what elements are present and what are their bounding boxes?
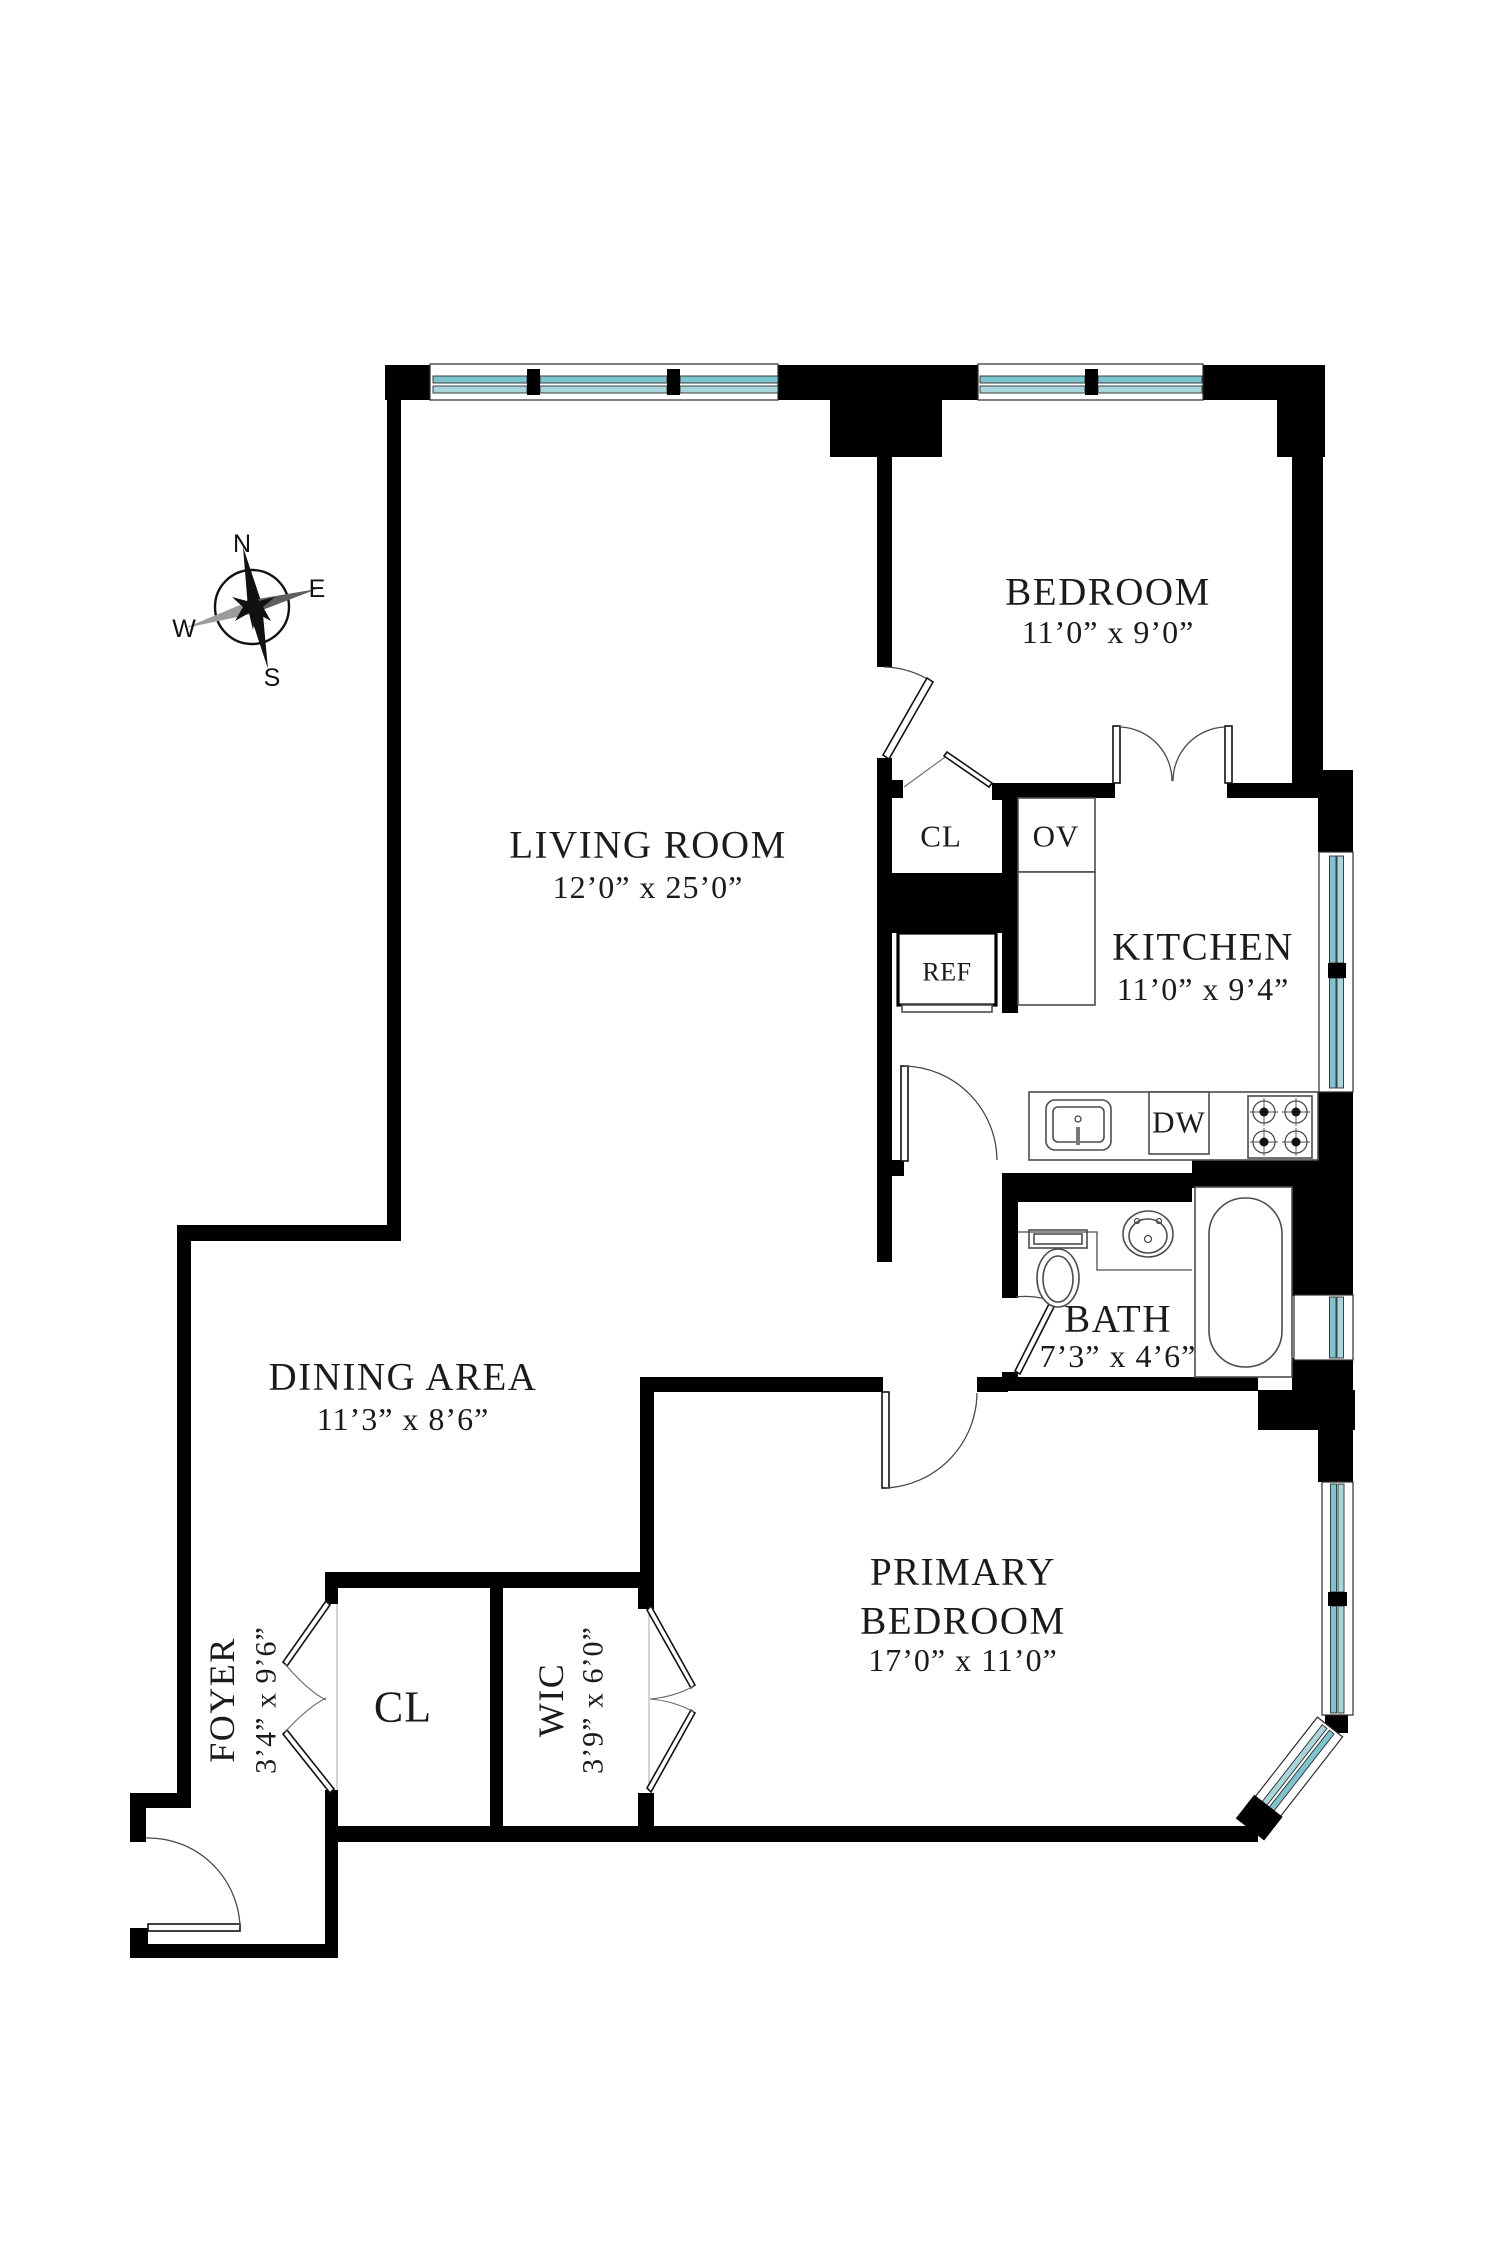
wall-segment (993, 783, 1115, 798)
wall-segment (1277, 400, 1325, 457)
kitchen-sink (1046, 1100, 1111, 1150)
wall-segment (640, 1377, 883, 1392)
wall-segment (1203, 365, 1325, 400)
door-primary-bedroom (882, 1392, 977, 1488)
label-dining-area-dims: 11’3” x 8’6” (317, 1401, 490, 1437)
door-wic (647, 1606, 695, 1792)
compass-letter-n: N (233, 530, 251, 558)
label-primary-line2: BEDROOM (860, 1600, 1066, 1643)
label-dishwasher: DW (1152, 1105, 1206, 1140)
wall-segment (877, 873, 1018, 933)
door-entry (146, 1838, 240, 1931)
label-bedroom-dims: 11’0” x 9’0” (1022, 614, 1195, 650)
label-refrigerator: REF (922, 958, 971, 987)
wall-segment (1292, 457, 1323, 797)
wall-segment (877, 758, 892, 1160)
window-bedroom-north (978, 364, 1203, 400)
wall-segment (890, 780, 903, 798)
label-bath: BATH (1064, 1298, 1172, 1341)
wall-segment (1318, 770, 1353, 852)
label-foyer: FOYER (202, 1637, 242, 1763)
label-dining-area: DINING AREA (269, 1356, 538, 1399)
wall-segment (325, 1808, 338, 1958)
wall-segment (892, 1160, 904, 1176)
bath-sink (1123, 1211, 1173, 1257)
label-wic-dims: 3’9” x 6’0” (577, 1626, 610, 1774)
wall-segment (877, 1160, 892, 1262)
window-bath-east (1294, 1295, 1353, 1360)
label-wic: WIC (531, 1663, 571, 1737)
wall-segment (387, 365, 401, 1225)
label-primary-dims: 17’0” x 11’0” (868, 1642, 1058, 1678)
label-foyer-closet: CL (374, 1683, 432, 1732)
window-living-north (430, 364, 778, 400)
wall-segment (177, 1241, 191, 1793)
label-oven: OV (1033, 819, 1080, 854)
wall-segment (130, 1808, 146, 1842)
label-hall-closet: CL (920, 819, 962, 854)
wall-segment (490, 1572, 503, 1832)
door-french-bedroom (1113, 726, 1232, 783)
room-labels: LIVING ROOM 12’0” x 25’0” BEDROOM 11’0” … (202, 571, 1294, 1774)
wall-segment (325, 1790, 338, 1808)
wall-segment (1292, 1160, 1353, 1296)
wall-segment (130, 1944, 338, 1958)
wall-segment (1318, 1092, 1353, 1160)
door-living-to-hall (883, 667, 933, 759)
label-living-room-dims: 12’0” x 25’0” (553, 869, 744, 905)
wall-segment (1292, 1358, 1353, 1428)
wall-segment (877, 457, 892, 667)
floor-plan-page: LIVING ROOM 12’0” x 25’0” BEDROOM 11’0” … (0, 0, 1496, 2244)
window-primary-east (1322, 1482, 1353, 1715)
wall-segment (990, 1377, 1258, 1391)
label-kitchen-dims: 11’0” x 9’4” (1117, 971, 1290, 1007)
wall-segment (1192, 1160, 1292, 1188)
bathtub (1195, 1187, 1292, 1377)
compass-rose: N E W S (172, 530, 325, 692)
floor-plan-svg: LIVING ROOM 12’0” x 25’0” BEDROOM 11’0” … (0, 0, 1496, 2244)
wall-segment (778, 365, 978, 400)
door-foyer-closet (283, 1601, 337, 1793)
label-living-room: LIVING ROOM (509, 824, 787, 867)
label-kitchen: KITCHEN (1112, 926, 1294, 969)
compass-letter-w: W (172, 615, 196, 643)
wall-segment (1318, 1428, 1353, 1482)
label-bath-dims: 7’3” x 4’6” (1040, 1338, 1197, 1374)
wall-segment (1002, 1202, 1018, 1298)
window-bay-diagonal (1236, 1716, 1344, 1841)
wall-segment (638, 1793, 654, 1828)
label-bedroom: BEDROOM (1005, 571, 1211, 614)
wall-segment (1227, 783, 1318, 798)
wall-segment (130, 1793, 191, 1808)
wall-segment (177, 1225, 401, 1241)
counter-tall (1018, 872, 1095, 1005)
wall-segment (337, 1826, 1258, 1842)
wall-segment (325, 1572, 652, 1588)
stove (1248, 1096, 1312, 1158)
wall-segment (1002, 1173, 1192, 1202)
compass-letter-e: E (309, 575, 326, 603)
window-kitchen-east (1319, 852, 1353, 1092)
toilet (1029, 1230, 1087, 1307)
label-foyer-dims: 3’4” x 9’6” (250, 1626, 283, 1774)
wall-segment (830, 400, 942, 457)
door-kitchen (901, 1066, 997, 1161)
label-primary-line1: PRIMARY (870, 1551, 1056, 1594)
compass-letter-s: S (264, 664, 281, 692)
door-hall-closet (904, 752, 992, 787)
wall-segment (640, 1392, 654, 1608)
